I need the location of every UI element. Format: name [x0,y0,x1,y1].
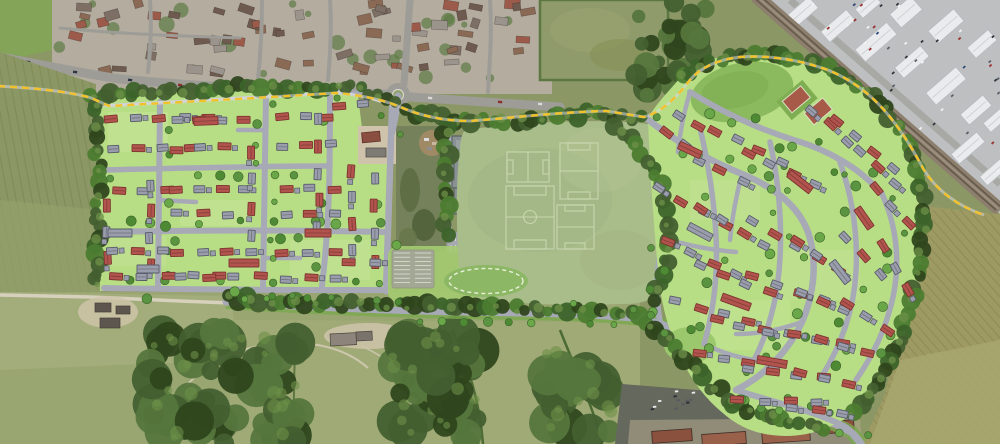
buffer-tree-highlight [915,184,923,192]
house-grey-roof [228,273,239,280]
roof-ridge [199,252,208,253]
village-house-aerial [214,45,227,53]
farm-building [330,333,357,346]
buffer-tree [543,307,553,317]
street-tree [171,237,180,246]
street-tree [241,296,247,302]
tree-highlight [587,387,599,399]
street-tree [230,287,240,297]
buffer-tree-highlight [896,338,903,345]
terrace-block [108,229,132,237]
house-grey-roof [222,212,233,219]
house-red-roof [275,112,289,120]
buffer-tree [648,294,662,308]
garage [856,385,862,391]
village-house-aerial [366,28,382,38]
street-tree [865,432,872,439]
street-tree [647,244,654,251]
street-tree [270,218,278,226]
village-tree [54,41,66,53]
garage [185,118,190,123]
street-tree [160,221,170,231]
street-tree [775,407,783,415]
tree-highlight [238,334,246,342]
house-red-roof [328,186,341,193]
street-tree [397,131,403,137]
street-tree [570,300,576,306]
tree-highlight [267,386,281,400]
tree-highlight [177,360,190,373]
house-red-roof [329,249,342,256]
farmstead-west [78,296,138,328]
garage [290,251,295,256]
tree-canopy [681,4,701,24]
garage [119,248,124,253]
house-grey-roof [718,355,730,363]
aerial-masterplan-image [0,0,1000,444]
garage [146,147,151,152]
house-grey-roof [145,232,153,243]
street-tree [395,299,402,306]
tree-highlight [387,360,400,373]
garage [319,276,324,281]
garage [247,185,252,190]
house-red-roof [254,272,267,280]
buffer-tree-highlight [915,270,920,275]
buffer-tree-highlight [95,148,101,154]
village-house-aerial [76,3,91,12]
buffer-tree-highlight [647,323,653,329]
street-tree [165,199,174,208]
roof-ridge [251,203,252,214]
street-tree [842,172,848,178]
garage [798,408,804,414]
buffer-tree-highlight [467,304,474,311]
house-red-roof [342,259,355,266]
house-red-roof [170,147,183,154]
tree-highlight [291,381,300,390]
street-tree [766,270,773,277]
street-tree [269,293,276,300]
tree-highlight [604,405,617,418]
tree-canopy [416,357,455,396]
garage [235,250,240,255]
buffer-tree-highlight [913,162,919,168]
tree-highlight [262,350,268,356]
house-grey-roof [175,273,186,281]
street-tree [726,155,734,163]
house-red-roof [370,199,377,212]
buffer-tree-highlight [444,128,454,138]
street-tree [767,185,775,193]
street-tree [195,220,202,227]
tree-canopy [202,361,221,380]
buffer-tree-highlight [514,309,520,315]
garage [207,145,212,150]
garage [802,333,808,339]
buffer-tree-highlight [539,117,545,123]
buffer-tree-highlight [427,304,434,311]
buffer-tree-highlight [579,306,586,313]
buffer-tree-highlight [138,89,146,97]
house-red-roof [170,249,183,256]
street-tree [271,171,279,179]
house-grey-roof [188,271,199,279]
street-tree [483,317,492,326]
garage [232,146,237,151]
street-tree [587,321,594,328]
village-house-aerial [512,3,521,12]
buffer-tree-highlight [914,247,923,256]
street-tree [289,293,295,299]
street-tree [355,235,362,242]
garage [146,251,151,256]
house-grey-roof [300,112,311,119]
street-tree [792,309,802,319]
garage [183,211,188,216]
street-tree [727,119,735,127]
village-house-aerial [112,66,127,72]
street-tree [831,361,841,371]
street-tree [751,114,760,123]
tree-highlight [191,351,199,359]
tree-canopy [625,64,647,86]
buffer-tree-highlight [269,300,276,307]
terrace-block [305,229,331,237]
street-tree [877,349,886,358]
house-red-roof [314,140,321,153]
village-house-aerial [419,63,429,71]
street-tree [460,318,468,326]
tree-canopy [181,338,206,363]
street-tree [860,286,867,293]
house-red-roof [197,209,210,217]
garage [772,401,777,406]
roof-ridge [108,251,117,252]
buffer-tree-highlight [441,171,447,177]
tree-highlight [151,342,158,349]
garage [823,400,828,405]
garage [777,293,783,299]
garage [317,208,322,213]
tree-highlight [430,331,441,342]
house-red-roof [104,115,118,123]
house-grey-roof [281,211,292,219]
tree-highlight [185,387,198,400]
garage [371,241,376,246]
house-red-roof [299,141,312,148]
village-house-aerial [444,59,459,65]
buffer-tree-highlight [677,70,686,79]
buffer-tree-highlight [334,297,343,306]
buffer-tree-highlight [312,85,319,92]
tree-highlight [408,364,417,373]
tree-canopy [635,37,649,51]
street-tree [701,193,709,201]
street-tree [253,160,259,166]
car [538,103,542,106]
house-grey-roof [277,143,288,150]
street-tree [527,319,535,327]
farm-building [100,318,120,328]
house-red-roof [237,116,250,123]
buffer-tree-highlight [95,282,101,288]
street-tree [376,218,385,227]
buffer-tree-highlight [632,141,639,148]
buffer-tree-highlight [899,312,909,322]
tree-highlight [258,331,270,343]
street-tree [721,257,728,264]
village-tree [289,0,297,8]
buffer-tree-highlight [91,234,101,244]
tree-canopy [640,88,655,103]
street-tree [784,188,790,194]
street-tree [834,318,843,327]
street-tree [334,95,340,101]
village-house-aerial [295,10,305,21]
buffer-tree-highlight [336,82,343,89]
terrace-block [229,259,259,267]
garage [258,250,263,255]
village-house-aerial [456,10,467,21]
tree-highlight [229,342,238,351]
house-grey-roof [246,248,264,255]
house-grey-roof [108,145,119,153]
street-tree [505,319,512,326]
tree-canopy [275,323,315,363]
tree-canopy [527,354,568,395]
garage [247,217,252,222]
terrace-block [137,265,159,273]
buffer-tree-highlight [921,207,929,215]
buffer-tree-highlight [248,85,255,92]
tree-highlight [546,423,555,432]
street-tree [878,302,888,312]
garage [774,333,780,339]
buffer-tree-highlight [94,192,102,200]
tree-highlight [550,346,562,358]
street-tree [417,319,423,325]
house-red-roof [169,186,182,194]
house-red-roof [348,217,356,230]
tree-highlight [586,359,596,369]
street-tree [773,342,781,350]
house-red-roof [332,102,345,110]
garage [247,161,252,166]
buffer-tree-highlight [156,89,163,96]
house-grey-roof [742,365,754,374]
garage [143,115,148,120]
street-tree [660,266,669,275]
tree-highlight [451,382,464,395]
roof-ridge [221,251,232,252]
street-tree [775,144,784,153]
masterplan-scene [0,0,1000,444]
street-tree [304,294,311,301]
tree-highlight [276,428,288,440]
garage [826,410,832,416]
tree-highlight [170,434,177,441]
garage [349,204,354,209]
buffer-tree [519,305,530,316]
garage [206,188,211,193]
buffer-tree-highlight [877,375,885,383]
house-grey-roof [304,184,315,191]
village-house-aerial [513,47,524,54]
street-tree [831,169,838,176]
tree-highlight [397,416,407,426]
street-tree [216,171,226,181]
car [73,71,77,74]
house-red-roof [766,368,780,376]
buffer-tree-highlight [269,82,277,90]
street-tree [815,138,822,145]
garage [343,277,348,282]
street-tree [392,240,401,249]
house-red-roof [730,396,743,404]
house-grey-roof [357,100,369,108]
village-tree [461,22,467,28]
garage [295,188,300,193]
buffer-tree-highlight [812,423,820,431]
garage [210,251,215,256]
buffer-tree-highlight [313,301,318,306]
terrace-block [194,117,218,126]
tree-canopy [662,19,678,35]
house-red-roof [216,185,229,192]
street-tree [126,216,136,226]
street-tree [748,165,757,174]
buffer-tree-highlight [116,91,124,99]
street-tree [764,171,774,181]
street-tree [373,297,380,304]
buffer-tree-highlight [441,146,448,153]
buffer-tree-highlight [620,313,626,319]
village-house-aerial [187,65,203,75]
tree-highlight [573,396,582,405]
roof-ridge [176,276,185,277]
buffer-tree-highlight [922,226,930,234]
village-house-aerial [375,54,390,60]
house-red-roof [316,193,323,213]
buffer-tree-highlight [94,102,100,108]
house-grey-roof [372,173,379,184]
village-house-aerial [393,36,401,42]
street-tree [312,262,321,271]
garage [104,266,109,271]
buffer-tree-highlight [889,356,896,363]
street-tree [290,171,298,179]
village-house-aerial [443,0,459,11]
car [128,79,132,82]
street-tree [165,126,172,133]
buffer-tree-highlight [664,222,669,227]
street-tree [835,429,843,437]
garage [848,414,854,420]
buffer-tree-highlight [91,122,101,132]
street-tree [851,181,861,191]
garage [707,352,713,358]
garage [315,252,320,257]
street-tree [376,280,382,286]
garage [102,239,107,244]
attenuation-mound [444,265,528,297]
village-tree [421,18,432,29]
garage [147,218,152,223]
village-house-aerial [516,36,530,43]
farm-building [95,303,111,312]
buffer-tree-highlight [356,298,364,306]
garage [849,347,855,353]
tree-highlight [206,343,212,349]
buffer-tree-highlight [96,168,101,173]
street-tree [378,112,384,118]
tree-highlight [551,408,565,422]
garage [318,213,323,218]
buffer-tree-highlight [404,306,409,311]
car [498,101,502,104]
garage [293,278,298,283]
buffer-tree-highlight [225,85,234,94]
farm-building [356,331,372,341]
roof-ridge [109,149,118,150]
tree-highlight [453,346,459,352]
buffer-tree-highlight [787,418,793,424]
buffer-tree-highlight [555,304,563,312]
street-tree [901,230,907,236]
buffer-tree-highlight [95,258,103,266]
house-red-roof [784,397,797,404]
village-tree [461,62,472,73]
roof-ridge [189,275,198,276]
buffer-tree-highlight [747,407,753,413]
tree-highlight [399,399,410,410]
garage [124,275,129,280]
house-grey-roof [137,188,148,195]
tree-highlight [443,422,450,429]
garage [147,273,152,278]
street-tree [272,199,278,205]
house-grey-roof [325,140,336,148]
tree-highlight [154,400,161,407]
house-red-roof [113,187,126,195]
buffer-tree-highlight [288,85,293,90]
buffer-tree-highlight [200,86,207,93]
tree-highlight [210,349,218,357]
buffer-tree-highlight [864,390,873,399]
street-tree [611,322,617,328]
village-house-aerial [431,20,447,30]
tree-highlight [168,336,178,346]
buffer-tree-highlight [678,349,687,358]
street-tree [661,329,669,337]
buffer-tree-highlight [447,303,456,312]
street-tree [328,294,334,300]
buffer-tree-highlight [383,305,389,311]
street-tree [815,232,825,242]
street-tree [269,101,276,108]
buffer-tree [792,416,806,430]
buffer-tree [441,228,456,243]
street-tree [233,172,243,182]
house-grey-roof [157,144,169,152]
street-tree [705,109,715,119]
farm-building [116,306,130,314]
house-red-roof [203,274,216,282]
house-grey-roof [158,247,169,254]
tree-highlight [164,386,172,394]
roof-ridge [251,231,252,240]
